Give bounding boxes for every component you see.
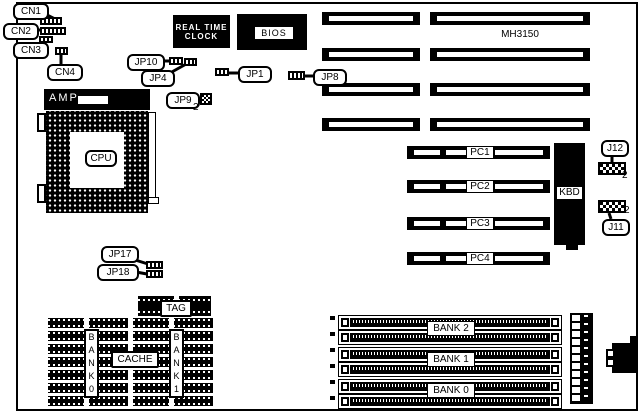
cn1-label: CN1 <box>13 3 49 20</box>
cn2-connector <box>40 27 66 35</box>
keyboard-din-connector-step <box>630 336 638 346</box>
j12-pin2-marker: 2 <box>622 170 628 181</box>
keyboard-din-connector <box>612 343 638 373</box>
jp8-connector <box>288 71 305 80</box>
cn3-label: CN3 <box>13 42 49 59</box>
j11-connector <box>598 200 626 213</box>
jp18-connector <box>146 270 163 278</box>
cn4-connector <box>55 47 68 55</box>
cache-label: CACHE <box>111 351 159 368</box>
keyboard-din-pin <box>606 358 615 367</box>
jp8-label: JP8 <box>313 69 347 86</box>
cpu-label: CPU <box>85 150 117 167</box>
jp10-connector-b <box>184 58 197 66</box>
jp4-label: JP4 <box>141 70 175 87</box>
jp17-label: JP17 <box>101 246 139 263</box>
cn2-label: CN2 <box>3 23 39 40</box>
jp9-connector <box>200 93 212 105</box>
cpu-socket-tab-top <box>37 113 46 132</box>
cache-bank0-label: BANK0 <box>84 329 99 398</box>
jp9-pin2-marker: 2 <box>193 102 199 113</box>
jp18-label: JP18 <box>97 264 139 281</box>
j11-label: J11 <box>602 219 630 236</box>
j11-pin2-marker: 2 <box>624 205 630 216</box>
memory-bank2-label: BANK 2 <box>427 321 475 336</box>
cn4-label: CN4 <box>47 64 83 81</box>
jp1-label: JP1 <box>238 66 272 83</box>
motherboard-diagram: CN1 CN2 CN3 CN4 REAL TIME CLOCK BIOS MH3… <box>0 0 640 416</box>
jp10-connector-a <box>169 57 183 65</box>
keyboard-din-pin <box>606 349 615 358</box>
jp10-label: JP10 <box>127 54 165 71</box>
j12-label: J12 <box>601 140 629 157</box>
cache-bank1-label: BANK1 <box>169 329 184 398</box>
jp17-connector <box>146 261 163 269</box>
memory-bank1-label: BANK 1 <box>427 352 475 367</box>
memory-bank0-label: BANK 0 <box>427 383 475 398</box>
tag-label: TAG <box>160 300 192 317</box>
cpu-socket-tab-bottom <box>37 184 46 203</box>
jp1-connector <box>215 68 229 76</box>
